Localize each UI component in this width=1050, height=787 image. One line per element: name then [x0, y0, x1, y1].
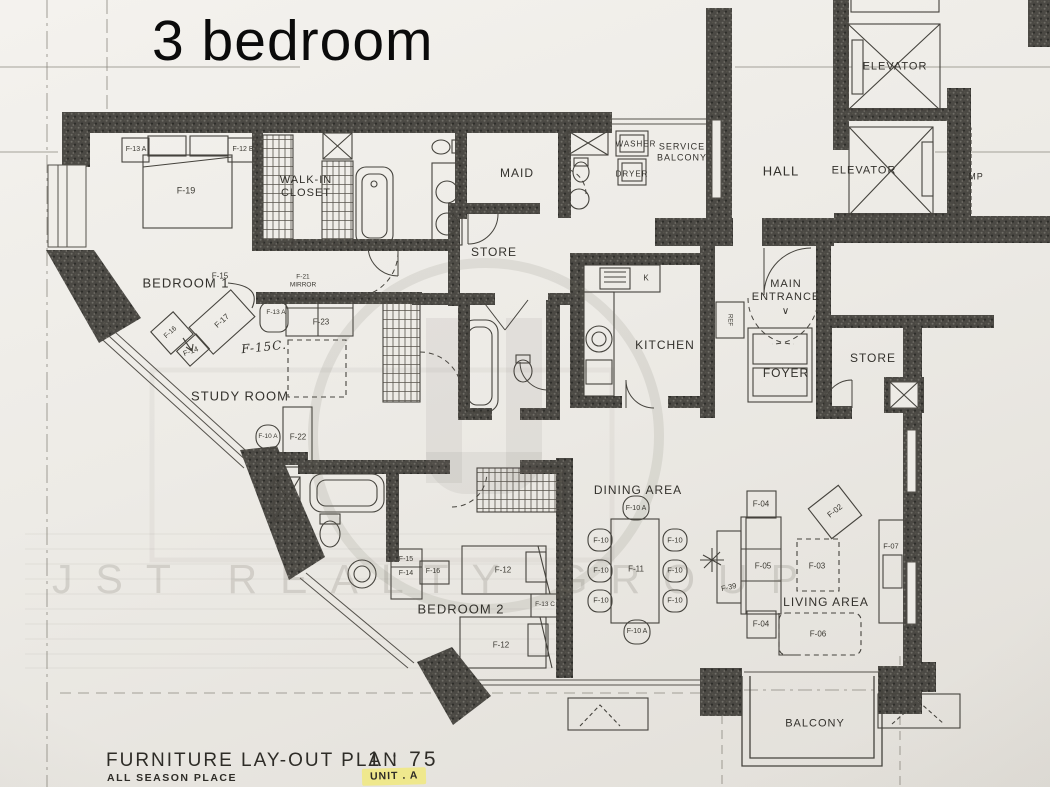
room-label-store-right: STORE: [850, 351, 896, 365]
furniture-label-f-03: F-03: [809, 561, 825, 570]
room-label-kitchen: KITCHEN: [635, 338, 695, 352]
furniture-label-f-14-2: F-14: [399, 570, 413, 578]
room-label-study-room: STUDY ROOM: [191, 388, 289, 403]
room-label-dryer: DRYER: [616, 169, 649, 178]
room-label-maid: MAID: [500, 166, 534, 180]
furniture-label-f-15c: F-15C.: [241, 338, 288, 357]
furniture-label-f-12-b: F-12 B: [232, 146, 253, 154]
furniture-label-f-22: F-22: [290, 432, 306, 441]
furniture-label-f-23: F-23: [313, 317, 329, 326]
room-label-store-upper: STORE: [471, 245, 517, 259]
furniture-label-f-13-a: F-13 A: [126, 146, 147, 154]
furniture-label-f-16: F-16: [163, 325, 179, 341]
room-label-walk-in-closet: WALK-IN CLOSET: [280, 174, 332, 200]
title-block: FURNITURE LAY-OUT PLAN 1 : 75 ALL SEASON…: [0, 744, 1050, 787]
scanned-floorplan-photo: 3 bedroom: [0, 0, 1050, 787]
furniture-label-f-10-3: F-10: [593, 597, 608, 606]
furniture-label-f-15: F-15: [212, 271, 228, 280]
furniture-label-f-05: F-05: [755, 561, 771, 570]
plan-title: FURNITURE LAY-OUT PLAN: [106, 750, 399, 772]
furniture-label-f-16-2: F-16: [426, 568, 440, 576]
furniture-label-f-10-a-3: F-10 A: [627, 628, 648, 636]
furniture-label-f-13-c: F-13 C: [535, 601, 555, 609]
furniture-label-f-10-2: F-10: [593, 567, 608, 576]
room-label-dining-area: DINING AREA: [594, 483, 682, 497]
unit-badge: UNIT . A: [362, 767, 427, 786]
room-label-service-balcony: SERVICE BALCONY: [657, 141, 707, 162]
furniture-label-f-19: F-19: [177, 186, 196, 197]
room-label-mp: MP: [968, 172, 984, 183]
furniture-label-kitchen-sink-k: K: [643, 273, 648, 282]
furniture-label-f-12-2: F-12: [493, 640, 509, 649]
furniture-label-f-10-4: F-10: [667, 537, 682, 546]
furniture-label-f-07: F-07: [883, 543, 898, 552]
furniture-label-f-39: F-39: [721, 582, 738, 594]
room-label-balcony: BALCONY: [785, 718, 845, 731]
room-label-foyer: FOYER: [763, 366, 809, 380]
furniture-label-f-10-a-2: F-10 A: [626, 505, 647, 513]
furniture-label-f-21-mirror: F-21 MIRROR: [290, 273, 316, 288]
furniture-label-f-14: F-14: [182, 345, 200, 359]
furniture-label-refrigerator: REF: [725, 314, 732, 326]
furniture-label-f-04-2: F-04: [753, 619, 769, 628]
furniture-label-f-17: F-17: [213, 312, 232, 330]
furniture-label-f-04: F-04: [753, 499, 769, 508]
furniture-label-f-10-6: F-10: [667, 597, 682, 606]
room-label-hall: HALL: [763, 163, 800, 178]
project-name: ALL SEASON PLACE: [107, 772, 237, 784]
furniture-label-f-10: F-10: [593, 537, 608, 546]
room-label-washer: WASHER: [616, 139, 657, 148]
room-label-elevator-1: ELEVATOR: [863, 61, 928, 74]
room-label-elevator-2: ELEVATOR: [832, 165, 897, 178]
room-label-bedroom-2: BEDROOM 2: [417, 601, 504, 616]
furniture-label-f-02: F-02: [826, 502, 845, 520]
main-entrance-arrow: ∨: [782, 306, 790, 318]
furniture-label-f-15-2: F-15: [399, 556, 413, 564]
room-label-main-entrance: MAIN ENTRANCE: [752, 278, 821, 304]
furniture-label-f-10-5: F-10: [667, 567, 682, 576]
furniture-label-f-12: F-12: [495, 565, 511, 574]
furniture-label-f-11: F-11: [628, 564, 644, 573]
furniture-label-f-13-a-2: F-13 A: [266, 309, 285, 317]
room-label-living-area: LIVING AREA: [783, 595, 869, 609]
furniture-label-f-10-a: F-10 A: [258, 433, 277, 441]
labels-layer: BEDROOM 1WALK-IN CLOSETMAIDSTOREWASHERSE…: [0, 0, 1050, 787]
furniture-label-f-06: F-06: [810, 629, 826, 638]
